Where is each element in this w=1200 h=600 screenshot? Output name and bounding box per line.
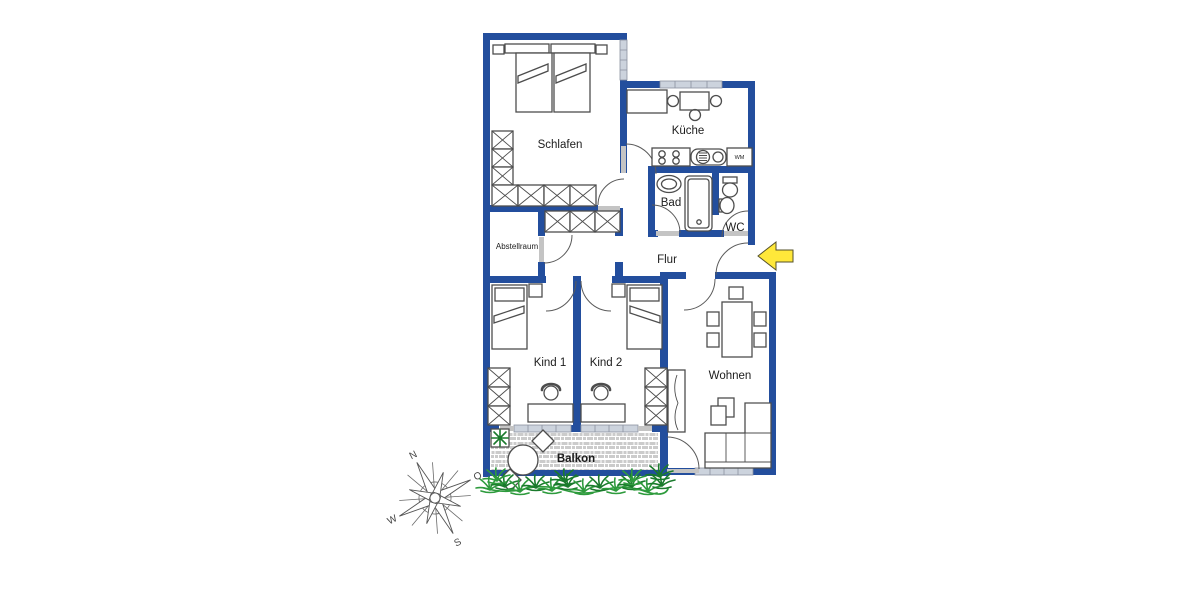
kitchen-counter-icon — [627, 90, 667, 113]
double-bed-icon — [493, 44, 607, 112]
entrance-door-arc — [716, 243, 748, 275]
wardrobe-icon — [488, 368, 510, 425]
wardrobe-icon — [645, 368, 667, 425]
washing-machine-icon: WM — [727, 148, 752, 166]
wc-sink-icon — [719, 198, 734, 214]
sideboard-icon — [668, 370, 685, 432]
room-label-kind1: Kind 1 — [534, 357, 567, 369]
room-kind1: Kind 1 — [488, 284, 573, 425]
room-label-kueche: Küche — [672, 125, 705, 137]
bathtub-icon — [685, 176, 712, 231]
room-label-abstellraum: Abstellraum — [496, 242, 539, 251]
room-label-schlafen: Schlafen — [538, 139, 583, 151]
compass-south-label: S — [452, 536, 463, 549]
compass-west-label: W — [386, 513, 400, 527]
room-kueche: WM Küche — [627, 90, 752, 166]
room-label-bad: Bad — [661, 197, 681, 209]
single-bed-icon — [492, 284, 542, 349]
room-label-kind2: Kind 2 — [590, 357, 623, 369]
window-kueche — [660, 81, 722, 88]
kitchen-table-icon — [668, 92, 722, 121]
kitchen-sink-icon — [691, 149, 726, 165]
room-wc: WC — [719, 177, 745, 234]
room-bad: Bad — [657, 176, 712, 232]
washing-machine-label: WM — [735, 155, 745, 161]
hall-closet-icon — [545, 211, 620, 232]
apartment-floorplan: Schlafen WM Küche — [0, 0, 1200, 600]
window-kind2-south — [581, 425, 638, 432]
kind2-door-arc — [581, 281, 611, 311]
coffee-table-icon — [711, 398, 734, 425]
room-wohnen: Wohnen — [668, 287, 771, 468]
kind1-door-arc — [546, 281, 576, 311]
single-bed-icon — [612, 284, 662, 349]
dining-table-icon — [707, 287, 766, 357]
bad-door-arc — [652, 205, 680, 233]
wohnen-door-arc — [684, 279, 715, 310]
toilet-icon — [723, 177, 738, 197]
room-label-balkon: Balkon — [557, 453, 595, 465]
bathroom-sink-icon — [657, 176, 681, 193]
desk-chair-icon — [528, 384, 573, 422]
desk-chair-icon — [581, 384, 625, 422]
room-schlafen: Schlafen — [492, 44, 607, 206]
window-schlafen-east — [620, 40, 627, 80]
schlafen-door-arc — [598, 179, 624, 205]
stove-icon — [652, 148, 690, 166]
room-label-wohnen: Wohnen — [709, 370, 752, 382]
compass-north-label: N — [408, 449, 419, 462]
balcony-door-arc — [667, 437, 699, 469]
window-wohnen-south — [695, 468, 753, 475]
entrance-arrow-icon — [758, 242, 793, 270]
room-label-wc: WC — [725, 222, 744, 234]
room-label-flur: Flur — [657, 254, 677, 266]
plant-icon — [491, 429, 509, 447]
abstellraum-door-arc — [544, 235, 572, 263]
